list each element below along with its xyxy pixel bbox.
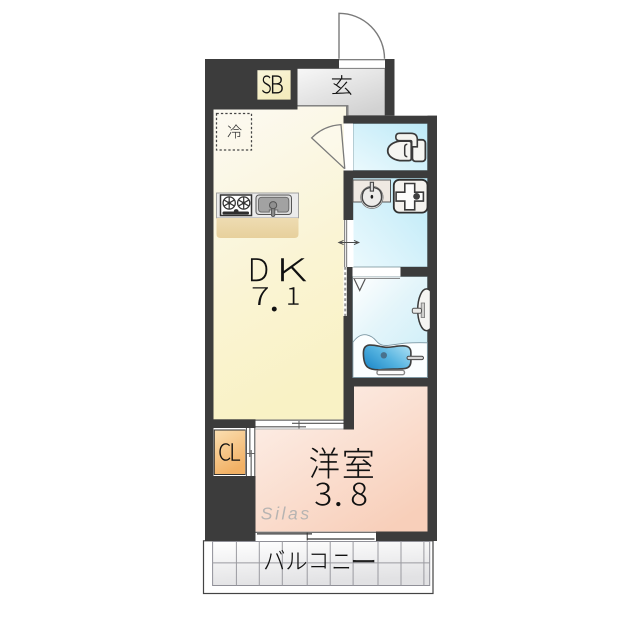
svg-text:Silas: Silas bbox=[261, 503, 312, 523]
